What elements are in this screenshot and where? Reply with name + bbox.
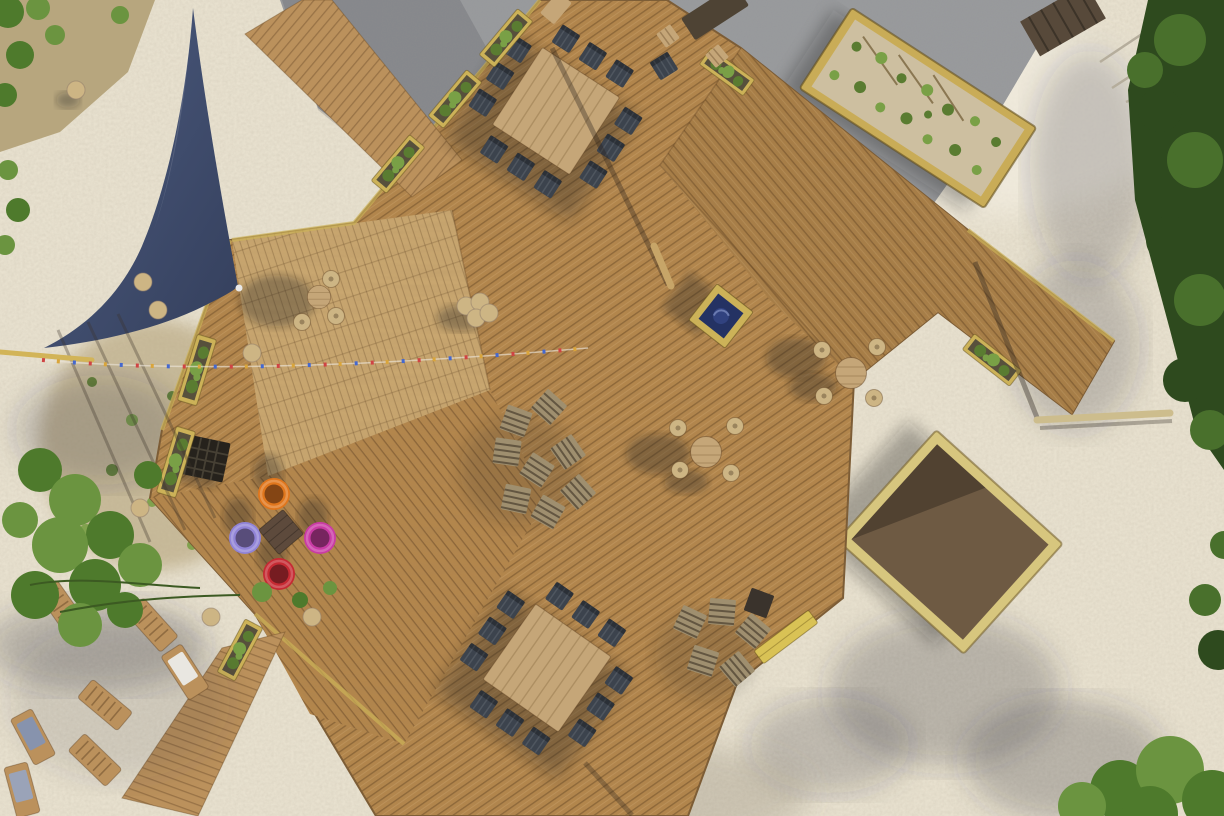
- pouf-orange: [258, 478, 290, 510]
- scene-canvas: Aerial top-down drone photo of a wooden …: [0, 0, 1224, 816]
- sail-attachment: [236, 285, 243, 292]
- pouf-magenta: [304, 522, 336, 554]
- pouf-lavender: [229, 522, 261, 554]
- aerial-photo-beach-deck: Aerial top-down drone photo of a wooden …: [0, 0, 1224, 816]
